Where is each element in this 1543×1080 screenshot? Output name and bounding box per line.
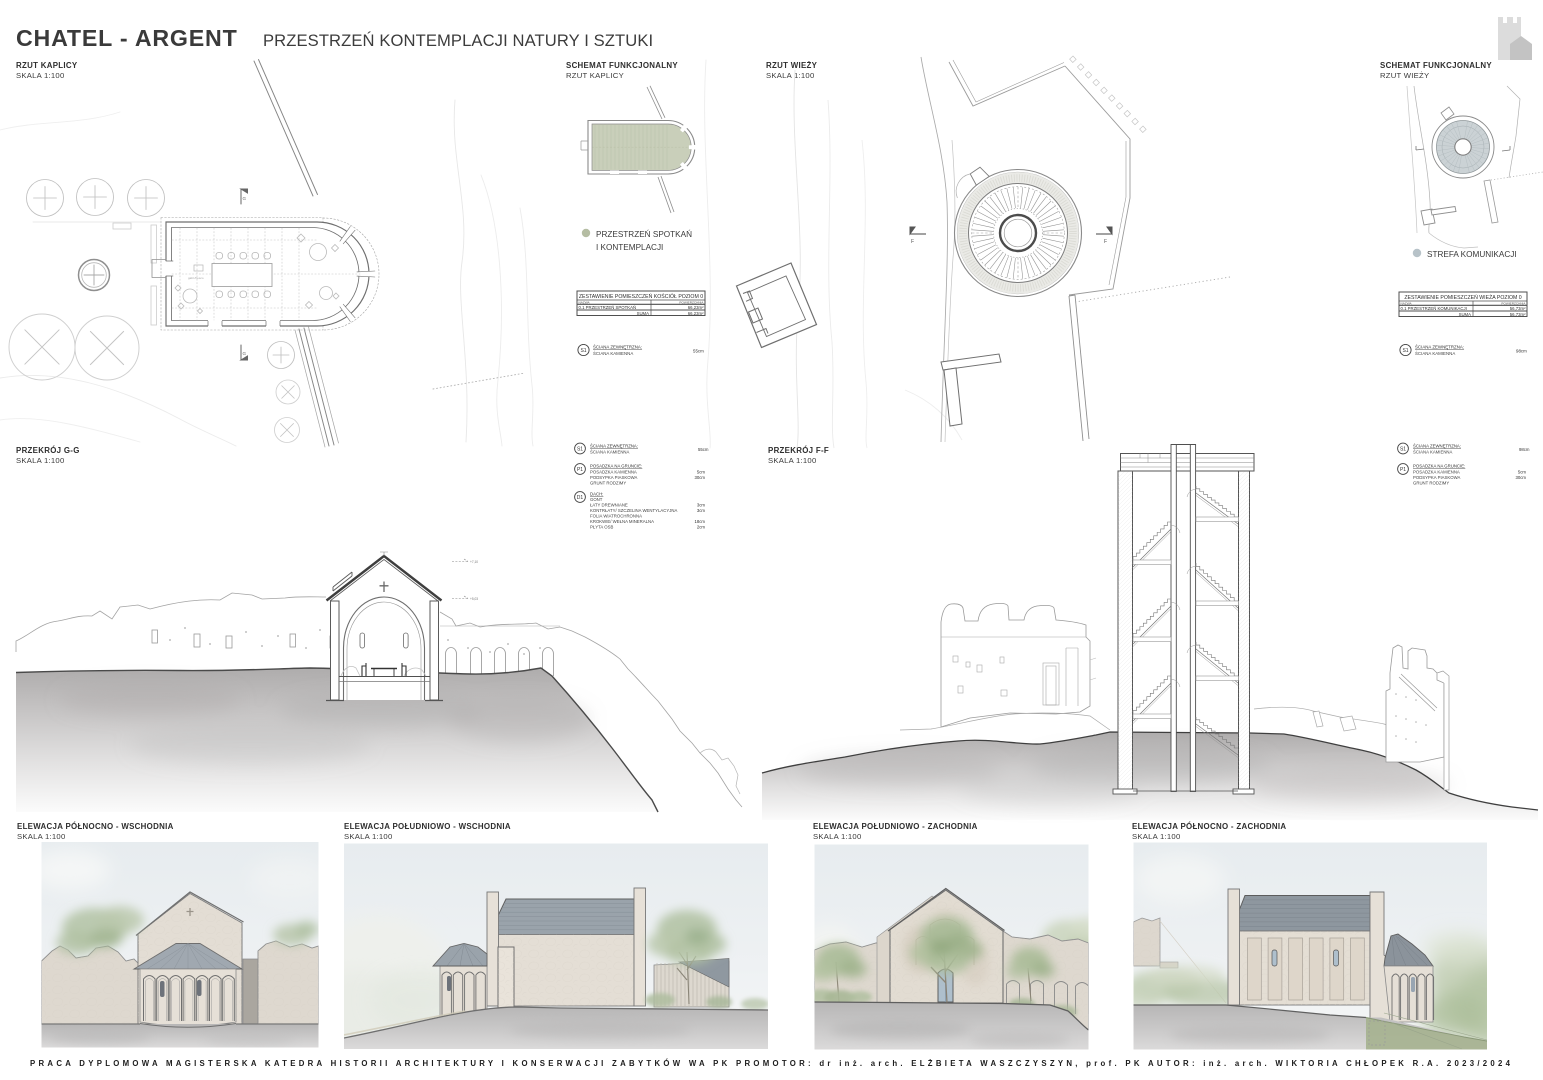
svg-text:SCHEMAT FUNKCJONALNY: SCHEMAT FUNKCJONALNY bbox=[566, 61, 678, 70]
svg-text:ŚCIANA ZEWNĘTRZNA:: ŚCIANA ZEWNĘTRZNA: bbox=[590, 444, 638, 449]
svg-text:POWIERZCHNIA: POWIERZCHNIA bbox=[1501, 301, 1526, 305]
svg-text:NAZWA: NAZWA bbox=[579, 300, 591, 304]
svg-text:PRZEKRÓJ G-G: PRZEKRÓJ G-G bbox=[16, 446, 80, 455]
svg-text:PŁYTA OSB: PŁYTA OSB bbox=[590, 525, 613, 530]
svg-text:D1: D1 bbox=[577, 495, 584, 501]
svg-text:POSADZKA NA GRUNCIE:: POSADZKA NA GRUNCIE: bbox=[590, 464, 642, 469]
svg-text:ELEWACJA POŁUDNIOWO - WSCHODNI: ELEWACJA POŁUDNIOWO - WSCHODNIA bbox=[344, 822, 511, 831]
svg-text:KROKWIE/ WEŁNA MINERALNA: KROKWIE/ WEŁNA MINERALNA bbox=[590, 519, 654, 524]
svg-text:GRUNT RODZIMY: GRUNT RODZIMY bbox=[1413, 481, 1449, 486]
svg-text:gabl./fresco: gabl./fresco bbox=[188, 276, 204, 280]
svg-text:ZESTAWIENIE POMIESZCZEŃ KOŚCIÓ: ZESTAWIENIE POMIESZCZEŃ KOŚCIÓŁ POZIOM 0 bbox=[579, 292, 703, 300]
svg-text:S1: S1 bbox=[1402, 348, 1408, 354]
svg-text:KONTRŁATY/ SZCZELINA WENTYLACY: KONTRŁATY/ SZCZELINA WENTYLACYJNA bbox=[590, 508, 677, 513]
svg-text:DACH:: DACH: bbox=[590, 492, 603, 497]
svg-text:ŁATY DREWNIANE: ŁATY DREWNIANE bbox=[590, 503, 628, 508]
svg-text:SKALA 1:100: SKALA 1:100 bbox=[344, 832, 392, 841]
svg-text:3cm: 3cm bbox=[697, 503, 706, 508]
svg-text:F: F bbox=[1104, 239, 1107, 245]
svg-text:STREFA KOMUNIKACJI: STREFA KOMUNIKACJI bbox=[1427, 250, 1517, 259]
svg-text:SUMA: SUMA bbox=[1459, 312, 1472, 317]
svg-text:F: F bbox=[911, 239, 914, 245]
svg-text:PRZESTRZEŃ KONTEMPLACJI NATURY: PRZESTRZEŃ KONTEMPLACJI NATURY I SZTUKI bbox=[263, 31, 653, 50]
svg-text:PRZESTRZEŃ SPOTKAŃ: PRZESTRZEŃ SPOTKAŃ bbox=[596, 229, 692, 239]
svg-text:18cm: 18cm bbox=[694, 519, 705, 524]
svg-text:G: G bbox=[243, 196, 247, 201]
svg-text:66,23m²: 66,23m² bbox=[688, 311, 704, 316]
svg-text:SCHEMAT FUNKCJONALNY: SCHEMAT FUNKCJONALNY bbox=[1380, 61, 1492, 70]
svg-text:RZUT WIEŻY: RZUT WIEŻY bbox=[1380, 71, 1429, 80]
svg-text:30cm: 30cm bbox=[1515, 475, 1526, 480]
svg-text:CHATEL - ARGENT: CHATEL - ARGENT bbox=[16, 25, 238, 51]
svg-text:3cm: 3cm bbox=[697, 508, 706, 513]
svg-text:GRUNT RODZIMY: GRUNT RODZIMY bbox=[590, 481, 626, 486]
svg-text:S1: S1 bbox=[1400, 447, 1406, 453]
svg-text:RZUT KAPLICY: RZUT KAPLICY bbox=[16, 61, 78, 70]
svg-text:5cm: 5cm bbox=[697, 470, 706, 475]
svg-text:ELEWACJA POŁUDNIOWO - ZACHODNI: ELEWACJA POŁUDNIOWO - ZACHODNIA bbox=[813, 822, 978, 831]
svg-text:SKALA 1:100: SKALA 1:100 bbox=[768, 456, 816, 465]
svg-text:PODSYPKA PIASKOWA: PODSYPKA PIASKOWA bbox=[1413, 475, 1460, 480]
svg-text:SKALA 1:100: SKALA 1:100 bbox=[1132, 832, 1180, 841]
svg-text:RZUT KAPLICY: RZUT KAPLICY bbox=[566, 71, 624, 80]
svg-text:0.1 PRZESTRZEŃ KOMUNIKACJI: 0.1 PRZESTRZEŃ KOMUNIKACJI bbox=[1401, 306, 1467, 311]
svg-text:G: G bbox=[243, 351, 247, 356]
svg-text:66,23m²: 66,23m² bbox=[688, 305, 704, 310]
svg-text:POSADZKA NA GRUNCIE:: POSADZKA NA GRUNCIE: bbox=[1413, 464, 1465, 469]
svg-text:30cm: 30cm bbox=[694, 475, 705, 480]
svg-text:ŚCIANA ZEWNĘTRZNA:: ŚCIANA ZEWNĘTRZNA: bbox=[1413, 444, 1461, 449]
svg-text:FOLIA WIATROCHRONNA: FOLIA WIATROCHRONNA bbox=[590, 514, 642, 519]
svg-text:98cm: 98cm bbox=[1516, 349, 1527, 354]
svg-text:NAZWA: NAZWA bbox=[1401, 301, 1413, 305]
svg-text:ELEWACJA PÓŁNOCNO - ZACHODNIA: ELEWACJA PÓŁNOCNO - ZACHODNIA bbox=[1132, 822, 1286, 831]
svg-text:POSADZKA KAMIENNA: POSADZKA KAMIENNA bbox=[590, 470, 637, 475]
svg-text:ELEWACJA PÓŁNOCNO - WSCHODNIA: ELEWACJA PÓŁNOCNO - WSCHODNIA bbox=[17, 822, 174, 831]
svg-text:+7,10: +7,10 bbox=[470, 560, 478, 564]
svg-text:SKALA 1:100: SKALA 1:100 bbox=[17, 832, 65, 841]
svg-text:56,73m²: 56,73m² bbox=[1510, 306, 1526, 311]
svg-text:ŚCIANA KAMIENNA: ŚCIANA KAMIENNA bbox=[1413, 450, 1453, 455]
svg-text:55cm: 55cm bbox=[693, 349, 704, 354]
svg-text:PRZEKRÓJ F-F: PRZEKRÓJ F-F bbox=[768, 446, 829, 455]
svg-text:SKALA 1:100: SKALA 1:100 bbox=[766, 71, 814, 80]
svg-text:SKALA 1:100: SKALA 1:100 bbox=[16, 456, 64, 465]
svg-text:56,73m²: 56,73m² bbox=[1510, 312, 1526, 317]
svg-text:PODSYPKA PIASKOWA: PODSYPKA PIASKOWA bbox=[590, 475, 637, 480]
svg-text:S1: S1 bbox=[577, 447, 583, 453]
svg-text:POWIERZCHNIA: POWIERZCHNIA bbox=[679, 300, 704, 304]
svg-text:I KONTEMPLACJI: I KONTEMPLACJI bbox=[596, 243, 663, 252]
svg-text:+5,03: +5,03 bbox=[470, 597, 478, 601]
svg-text:P1: P1 bbox=[577, 467, 583, 473]
svg-text:RZUT WIEŻY: RZUT WIEŻY bbox=[766, 61, 818, 70]
svg-text:2cm: 2cm bbox=[697, 525, 706, 530]
svg-text:ZESTAWIENIE POMIESZCZEŃ WIEŻA: ZESTAWIENIE POMIESZCZEŃ WIEŻA POZIOM 0 bbox=[1404, 294, 1521, 301]
svg-text:ŚCIANA KAMIENNA: ŚCIANA KAMIENNA bbox=[1415, 351, 1455, 356]
svg-text:PRACA DYPLOMOWA MAGISTERSKA KA: PRACA DYPLOMOWA MAGISTERSKA KATEDRA HIST… bbox=[30, 1059, 1513, 1068]
svg-text:55cm: 55cm bbox=[698, 447, 709, 452]
svg-text:ŚCIANA ZEWNĘTRZNA:: ŚCIANA ZEWNĘTRZNA: bbox=[1415, 345, 1464, 350]
svg-text:0.1 PRZESTRZEŃ SPOTKAŃ: 0.1 PRZESTRZEŃ SPOTKAŃ bbox=[579, 305, 637, 310]
svg-text:S1: S1 bbox=[580, 348, 586, 354]
svg-text:P1: P1 bbox=[1400, 467, 1406, 473]
svg-text:SUMA: SUMA bbox=[637, 311, 650, 316]
svg-text:ŚCIANA KAMIENNA: ŚCIANA KAMIENNA bbox=[593, 351, 633, 356]
svg-text:POSADZKA KAMIENNA: POSADZKA KAMIENNA bbox=[1413, 470, 1460, 475]
svg-text:5cm: 5cm bbox=[1518, 470, 1527, 475]
svg-text:SKALA 1:100: SKALA 1:100 bbox=[813, 832, 861, 841]
svg-text:SKALA 1:100: SKALA 1:100 bbox=[16, 71, 64, 80]
svg-text:ŚCIANA KAMIENNA: ŚCIANA KAMIENNA bbox=[590, 450, 630, 455]
svg-text:98cm: 98cm bbox=[1519, 447, 1530, 452]
svg-text:ŚCIANA ZEWNĘTRZNA:: ŚCIANA ZEWNĘTRZNA: bbox=[593, 345, 642, 350]
svg-text:GONT: GONT bbox=[590, 497, 603, 502]
